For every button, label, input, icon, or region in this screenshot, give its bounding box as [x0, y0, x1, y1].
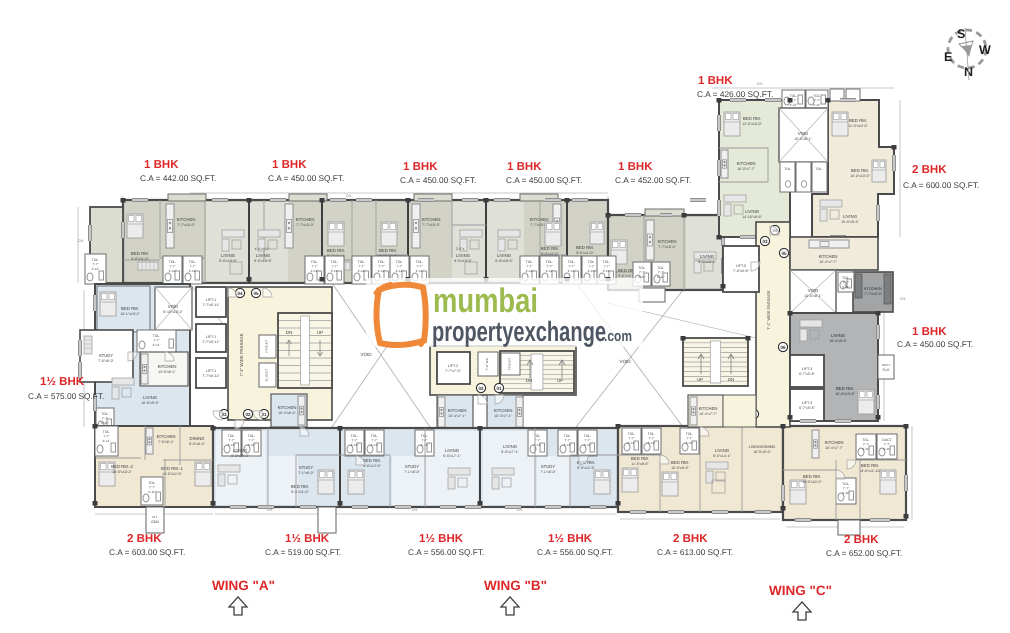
svg-text:TOL.: TOL. — [396, 260, 404, 264]
svg-text:VOID: VOID — [168, 304, 179, 309]
svg-text:2'-6"x: 2'-6"x — [456, 247, 465, 251]
svg-text:TOL.: TOL. — [648, 432, 656, 436]
svg-text:KITCHEN: KITCHEN — [819, 254, 838, 259]
svg-text:KITCHEN: KITCHEN — [699, 406, 718, 411]
svg-text:STUDY: STUDY — [299, 465, 314, 470]
svg-text:3'-11": 3'-11" — [588, 269, 596, 273]
svg-text:BED RM.: BED RM. — [671, 460, 689, 465]
svg-text:KITCHEN: KITCHEN — [825, 440, 844, 445]
svg-text:CH.: CH. — [757, 82, 763, 86]
svg-text:LIFT-2: LIFT-2 — [448, 364, 458, 368]
svg-text:TOL.: TOL. — [311, 260, 319, 264]
svg-text:7'-7": 7'-7" — [416, 265, 422, 269]
svg-text:7'-0"x6'-8": 7'-0"x6'-8" — [733, 269, 749, 273]
svg-text:VOID: VOID — [619, 359, 631, 364]
svg-text:1 BHK: 1 BHK — [618, 161, 653, 173]
svg-text:LIFT-1: LIFT-1 — [206, 369, 216, 373]
svg-text:7'-7"x10'-0": 7'-7"x10'-0" — [422, 223, 440, 227]
svg-text:7'-7": 7'-7" — [169, 265, 175, 269]
svg-text:DN: DN — [728, 377, 734, 382]
svg-text:LIVING: LIVING — [715, 448, 730, 453]
svg-text:DUCT: DUCT — [882, 363, 890, 367]
svg-text:LIVING/DINING: LIVING/DINING — [749, 445, 776, 449]
svg-text:3'-11": 3'-11" — [101, 421, 109, 425]
svg-text:C.A = 450.00 SQ.FT.: C.A = 450.00 SQ.FT. — [268, 173, 344, 183]
svg-text:10'-0"x10'-2": 10'-0"x10'-2" — [112, 470, 132, 474]
svg-text:KITCHEN: KITCHEN — [278, 405, 297, 410]
svg-text:9'-6"x12'-6": 9'-6"x12'-6" — [363, 464, 381, 468]
svg-text:9'-6"x19'-6": 9'-6"x19'-6" — [698, 260, 716, 264]
svg-text:7'-7": 7'-7" — [584, 439, 590, 443]
svg-text:TOL.: TOL. — [378, 260, 386, 264]
svg-text:10'-4"x7'-7": 10'-4"x7'-7" — [825, 446, 843, 450]
svg-text:TOL.: TOL. — [153, 334, 161, 338]
svg-text:7'-7": 7'-7" — [628, 437, 634, 441]
svg-text:8'-0"x8'-4": 8'-0"x8'-4" — [189, 442, 205, 446]
svg-text:LIVING: LIVING — [843, 214, 858, 219]
svg-text:10'-4"x7'-1": 10'-4"x7'-1" — [494, 414, 512, 418]
svg-text:3'-11": 3'-11" — [371, 443, 379, 447]
svg-text:STUDY: STUDY — [405, 464, 420, 469]
svg-text:7'-7": 7'-7" — [396, 265, 402, 269]
svg-text:10'-0"x9'-6": 10'-0"x9'-6" — [671, 466, 689, 470]
svg-text:CH.: CH. — [346, 194, 352, 198]
svg-text:3'-11": 3'-11" — [351, 443, 359, 447]
svg-text:02: 02 — [245, 412, 251, 417]
svg-text:9'-5"x14'-1": 9'-5"x14'-1" — [713, 454, 731, 458]
svg-text:3'-11": 3'-11" — [790, 103, 798, 107]
svg-text:7'-7": 7'-7" — [843, 281, 849, 285]
svg-text:3'-11": 3'-11" — [584, 443, 592, 447]
svg-text:18'-9"x9'-6": 18'-9"x9'-6" — [141, 401, 159, 405]
svg-text:7'-7": 7'-7" — [564, 439, 570, 443]
svg-text:BED RM.: BED RM. — [743, 116, 761, 121]
svg-text:10'-0"x13'-8": 10'-0"x13'-8" — [835, 392, 855, 396]
svg-text:TOL.: TOL. — [331, 260, 339, 264]
svg-text:BED RM.-1: BED RM.-1 — [161, 466, 183, 471]
svg-text:TOL.: TOL. — [148, 481, 156, 485]
svg-text:VOID: VOID — [360, 352, 372, 357]
svg-text:3'-11": 3'-11" — [311, 269, 319, 273]
svg-text:7'-7": 7'-7" — [351, 439, 357, 443]
svg-text:UP: UP — [697, 377, 703, 382]
svg-text:6'-7"x5'-8": 6'-7"x5'-8" — [799, 406, 815, 410]
svg-text:LIVING: LIVING — [256, 253, 271, 258]
svg-text:DN: DN — [526, 378, 532, 383]
svg-text:7'-7": 7'-7" — [371, 439, 377, 443]
svg-text:TOL.: TOL. — [657, 266, 665, 270]
svg-text:3'-11": 3'-11" — [686, 441, 694, 445]
svg-text:KITCHEN: KITCHEN — [158, 364, 177, 369]
svg-text:CH.: CH. — [900, 297, 906, 301]
svg-text:TOL.: TOL. — [842, 482, 850, 486]
svg-text:3'-11": 3'-11" — [568, 269, 576, 273]
svg-text:10'-0"x8'-1": 10'-0"x8'-1" — [794, 137, 812, 141]
svg-text:C.A = 556.00 SQ.FT.: C.A = 556.00 SQ.FT. — [408, 547, 484, 557]
svg-text:7'-7"x5'-11": 7'-7"x5'-11" — [202, 374, 220, 378]
svg-text:7'-7": 7'-7" — [546, 265, 552, 269]
svg-text:DUCT: DUCT — [882, 438, 891, 442]
svg-text:F.F.DUCT: F.F.DUCT — [265, 339, 269, 352]
svg-text:LIVING: LIVING — [497, 253, 512, 258]
svg-text:3'-11": 3'-11" — [358, 269, 366, 273]
svg-text:7'-7": 7'-7" — [102, 417, 108, 421]
svg-text:2 BHK: 2 BHK — [673, 533, 708, 545]
svg-text:TOL.: TOL. — [603, 260, 611, 264]
svg-text:3'-11": 3'-11" — [228, 443, 236, 447]
svg-text:05: 05 — [253, 291, 259, 296]
svg-text:TOL.: TOL. — [228, 434, 236, 438]
svg-text:3'-11": 3'-11" — [546, 269, 554, 273]
svg-text:TOL.: TOL. — [686, 432, 694, 436]
svg-text:TOL.: TOL. — [790, 94, 798, 98]
svg-text:7'-7": 7'-7" — [603, 265, 609, 269]
svg-text:3'-11": 3'-11" — [331, 269, 339, 273]
svg-text:3'-11": 3'-11" — [628, 441, 636, 445]
svg-text:TOL.: TOL. — [103, 430, 111, 434]
svg-text:1 BHK: 1 BHK — [698, 75, 733, 87]
svg-text:10'-4"x7'-7": 10'-4"x7'-7" — [699, 412, 717, 416]
svg-text:3'-11": 3'-11" — [842, 491, 850, 495]
svg-text:TOL.: TOL. — [169, 260, 177, 264]
svg-text:10'-4"x7'-1": 10'-4"x7'-1" — [448, 414, 466, 418]
svg-text:KITCHEN: KITCHEN — [737, 161, 756, 166]
svg-text:05: 05 — [781, 251, 787, 256]
svg-text:WING "C": WING "C" — [769, 583, 832, 598]
svg-text:E: E — [944, 50, 952, 64]
svg-text:LIVING: LIVING — [745, 209, 760, 214]
svg-text:TOL.: TOL. — [526, 260, 534, 264]
svg-text:1½ BHK: 1½ BHK — [40, 376, 85, 388]
svg-text:7'-7": 7'-7" — [526, 265, 532, 269]
svg-text:TOL.: TOL. — [351, 434, 359, 438]
svg-text:BED RM.: BED RM. — [379, 248, 397, 253]
svg-text:3'-11": 3'-11" — [148, 490, 156, 494]
svg-text:3'-11": 3'-11" — [813, 103, 821, 107]
svg-text:TOL.: TOL. — [371, 434, 379, 438]
svg-text:C.A = 556.00 SQ.FT.: C.A = 556.00 SQ.FT. — [537, 547, 613, 557]
svg-text:C.A = 652.00 SQ.FT.: C.A = 652.00 SQ.FT. — [826, 548, 902, 558]
svg-text:10'-1"x10'-2": 10'-1"x10'-2" — [120, 312, 140, 316]
svg-text:GDN: GDN — [151, 520, 159, 524]
svg-text:7'-7": 7'-7" — [92, 263, 98, 267]
svg-text:DN: DN — [286, 330, 293, 335]
svg-text:7'-7"x5'-11": 7'-7"x5'-11" — [202, 303, 220, 307]
svg-text:TOL.: TOL. — [358, 260, 366, 264]
svg-text:10'-0"x7'-7": 10'-0"x7'-7" — [737, 167, 755, 171]
svg-text:C.A = 450.00 SQ.FT.: C.A = 450.00 SQ.FT. — [400, 175, 476, 185]
svg-text:STUDY: STUDY — [99, 353, 114, 358]
svg-text:TOL.: TOL. — [564, 434, 572, 438]
svg-text:9'-6"x11'-0": 9'-6"x11'-0" — [576, 251, 594, 255]
svg-text:LIVING: LIVING — [143, 395, 158, 400]
svg-text:TOL.: TOL. — [546, 260, 554, 264]
svg-text:10'-0"x8'-1": 10'-0"x8'-1" — [804, 294, 822, 298]
svg-text:BED RM.: BED RM. — [861, 463, 879, 468]
svg-text:18'-4"x9'-6": 18'-4"x9'-6" — [829, 339, 847, 343]
svg-text:TOL.: TOL. — [628, 432, 636, 436]
svg-text:W: W — [979, 43, 991, 57]
svg-text:18'-9"x9'-0": 18'-9"x9'-0" — [753, 450, 771, 454]
svg-text:.com: .com — [604, 328, 632, 345]
svg-text:UP: UP — [557, 378, 563, 383]
svg-text:7'-7": 7'-7" — [568, 265, 574, 269]
svg-text:UP: UP — [317, 330, 323, 335]
svg-text:1 BHK: 1 BHK — [144, 159, 179, 171]
svg-text:STUDY: STUDY — [541, 464, 556, 469]
svg-text:TOL.: TOL. — [862, 438, 870, 442]
svg-text:TOL.: TOL. — [842, 276, 850, 280]
svg-text:KITCHEN: KITCHEN — [177, 217, 196, 222]
svg-text:TOL.: TOL. — [416, 260, 424, 264]
svg-text:7'-7"x10'-0": 7'-7"x10'-0" — [658, 245, 676, 249]
svg-text:7'-0"x8'-0": 7'-0"x8'-0" — [98, 359, 114, 363]
svg-text:C.A = 600.00 SQ.FT.: C.A = 600.00 SQ.FT. — [903, 180, 979, 190]
svg-text:7'-1" WIDE PASSAGE: 7'-1" WIDE PASSAGE — [766, 290, 771, 330]
svg-text:7'-7": 7'-7" — [814, 99, 820, 103]
svg-text:BED RM.: BED RM. — [121, 306, 139, 311]
svg-text:3'-11": 3'-11" — [103, 439, 111, 443]
svg-text:7'-7"x10'-0": 7'-7"x10'-0" — [177, 223, 195, 227]
svg-text:7'-7"x5'-11": 7'-7"x5'-11" — [202, 340, 220, 344]
svg-text:KITCHEN: KITCHEN — [448, 408, 467, 413]
svg-text:KITCHEN: KITCHEN — [530, 217, 549, 222]
svg-text:KIT.: KIT. — [152, 515, 157, 519]
svg-text:7'-1"x8'-0": 7'-1"x8'-0" — [540, 470, 556, 474]
svg-text:BED RM.: BED RM. — [131, 251, 149, 256]
svg-text:7'-7": 7'-7" — [358, 265, 364, 269]
svg-text:9'-6"x19'-6": 9'-6"x19'-6" — [254, 259, 272, 263]
svg-text:9'-10"x10'-2": 9'-10"x10'-2" — [163, 310, 183, 314]
svg-text:LIVING: LIVING — [456, 253, 471, 258]
svg-text:WING "B": WING "B" — [484, 578, 547, 593]
svg-text:1 BHK: 1 BHK — [272, 159, 307, 171]
svg-text:1½ BHK: 1½ BHK — [548, 533, 593, 545]
svg-text:C.A = 426.00 SQ.FT.: C.A = 426.00 SQ.FT. — [697, 89, 773, 99]
svg-text:TOL.: TOL. — [588, 260, 596, 264]
svg-text:7'-7": 7'-7" — [686, 437, 692, 441]
svg-text:C.A = 575.00 SQ.FT.: C.A = 575.00 SQ.FT. — [28, 391, 104, 401]
svg-text:EL.DUCT: EL.DUCT — [265, 368, 269, 381]
svg-text:TOL.: TOL. — [784, 167, 791, 171]
svg-text:9'-6"x19'-6": 9'-6"x19'-6" — [454, 259, 472, 263]
svg-text:6'-7"x5'-8": 6'-7"x5'-8" — [799, 372, 815, 376]
svg-text:7'-7": 7'-7" — [153, 339, 159, 343]
svg-text:TOL.: TOL. — [638, 266, 646, 270]
svg-text:3'-11": 3'-11" — [248, 443, 256, 447]
svg-text:7'-8" W.C: 7'-8" W.C — [485, 357, 489, 370]
svg-text:9'-6"x11'-0": 9'-6"x11'-0" — [541, 252, 559, 256]
svg-text:C.A = 450.00 SQ.FT.: C.A = 450.00 SQ.FT. — [897, 339, 973, 349]
svg-text:LIVING: LIVING — [445, 448, 460, 453]
svg-text:3'-11": 3'-11" — [189, 269, 197, 273]
svg-text:3'-11": 3'-11" — [862, 447, 870, 451]
svg-text:7'-7": 7'-7" — [228, 439, 234, 443]
svg-text:11'-6"x8'-6": 11'-6"x8'-6" — [631, 462, 649, 466]
svg-text:7'-7"x10'-0": 7'-7"x10'-0" — [864, 292, 882, 296]
svg-text:7'-7": 7'-7" — [149, 486, 155, 490]
svg-text:9'-6"x19'-6": 9'-6"x19'-6" — [219, 259, 237, 263]
svg-text:TOL.: TOL. — [815, 167, 822, 171]
svg-text:4'-4"x8'-0": 4'-4"x8'-0" — [255, 247, 271, 251]
svg-text:C.A = 613.00 SQ.FT.: C.A = 613.00 SQ.FT. — [657, 547, 733, 557]
svg-text:9'-6"x19'-6": 9'-6"x19'-6" — [231, 454, 249, 458]
svg-text:12'-0"x10'-0": 12'-0"x10'-0" — [742, 122, 762, 126]
svg-text:LIVING: LIVING — [831, 333, 846, 338]
svg-text:11'-0"x10'-0": 11'-0"x10'-0" — [802, 480, 822, 484]
svg-text:7'-1"x8'-0": 7'-1"x8'-0" — [404, 470, 420, 474]
svg-text:KITCHEN: KITCHEN — [864, 286, 882, 291]
svg-text:02: 02 — [478, 386, 484, 391]
svg-text:BED RM.: BED RM. — [851, 168, 869, 173]
svg-text:LIVING: LIVING — [221, 253, 236, 258]
svg-text:7'-7": 7'-7" — [103, 435, 109, 439]
svg-text:LIFT-3: LIFT-3 — [802, 401, 812, 405]
svg-text:KITCHEN: KITCHEN — [494, 408, 513, 413]
svg-text:BED RM.: BED RM. — [541, 246, 559, 251]
svg-text:7'-1"x8'-0": 7'-1"x8'-0" — [298, 471, 314, 475]
svg-text:BED RM.: BED RM. — [631, 456, 649, 461]
svg-text:LIVING: LIVING — [233, 448, 248, 453]
svg-text:1½ BHK: 1½ BHK — [419, 533, 464, 545]
svg-text:10'-0"x10'-0": 10'-0"x10'-0" — [850, 174, 870, 178]
svg-text:3'-11": 3'-11" — [396, 269, 404, 273]
svg-text:BED RM.: BED RM. — [849, 118, 867, 123]
svg-text:2 BHK: 2 BHK — [912, 164, 947, 176]
svg-text:TOL.: TOL. — [421, 434, 429, 438]
svg-text:1 BHK: 1 BHK — [912, 326, 947, 338]
svg-text:2 BHK: 2 BHK — [844, 534, 879, 546]
svg-text:3'-11": 3'-11" — [526, 269, 534, 273]
svg-text:1½ BHK: 1½ BHK — [285, 533, 330, 545]
svg-text:C.A = 452.00 SQ.FT.: C.A = 452.00 SQ.FT. — [615, 175, 691, 185]
svg-text:WING "A": WING "A" — [212, 578, 275, 593]
svg-text:LIFT-3: LIFT-3 — [802, 367, 812, 371]
svg-text:BED RM.: BED RM. — [291, 484, 309, 489]
svg-text:03: 03 — [762, 239, 768, 244]
svg-text:10'-4"x8'-4": 10'-4"x8'-4" — [278, 411, 296, 415]
svg-text:3'-11": 3'-11" — [657, 275, 665, 279]
svg-text:BED RM.: BED RM. — [803, 474, 821, 479]
svg-text:7'-7": 7'-7" — [884, 443, 890, 447]
svg-text:14'-10"x9'-6": 14'-10"x9'-6" — [742, 215, 762, 219]
svg-text:TOL.: TOL. — [92, 258, 100, 262]
svg-text:KITCHEN: KITCHEN — [157, 434, 176, 439]
svg-text:TOL.: TOL. — [568, 260, 576, 264]
svg-text:3'-11": 3'-11" — [564, 443, 572, 447]
svg-text:04: 04 — [237, 291, 243, 296]
svg-text:3'-11": 3'-11" — [169, 269, 177, 273]
svg-text:7'-5"x8'-4": 7'-5"x8'-4" — [158, 440, 174, 444]
svg-text:7'-7": 7'-7" — [331, 265, 337, 269]
svg-text:7'-7": 7'-7" — [378, 265, 384, 269]
svg-text:DINING: DINING — [189, 436, 205, 441]
svg-text:BED RM.: BED RM. — [576, 245, 594, 250]
svg-text:2 BHK: 2 BHK — [127, 533, 162, 545]
svg-text:7'-7": 7'-7" — [658, 271, 664, 275]
svg-text:BED RM.-2: BED RM.-2 — [111, 464, 133, 469]
svg-text:TOL.: TOL. — [101, 412, 109, 416]
svg-text:11'-0"x10'-0": 11'-0"x10'-0" — [848, 124, 868, 128]
svg-text:06: 06 — [780, 345, 786, 350]
svg-text:TOL.: TOL. — [189, 260, 197, 264]
svg-text:KITCHEN: KITCHEN — [422, 217, 441, 222]
svg-text:9'-6"x12'-6": 9'-6"x12'-6" — [577, 466, 595, 470]
svg-text:F.F.DUCT: F.F.DUCT — [508, 358, 512, 371]
svg-text:C.A = 519.00 SQ.FT.: C.A = 519.00 SQ.FT. — [265, 547, 341, 557]
svg-text:VOID: VOID — [798, 131, 809, 136]
svg-text:15'-0"x9'-6": 15'-0"x9'-6" — [841, 220, 859, 224]
svg-text:7'-7": 7'-7" — [421, 439, 427, 443]
svg-text:C.A = 442.00 SQ.FT.: C.A = 442.00 SQ.FT. — [140, 173, 216, 183]
svg-text:CH.: CH. — [412, 508, 418, 512]
svg-text:9'-6"x11'-0": 9'-6"x11'-0" — [291, 490, 309, 494]
svg-text:3'-11": 3'-11" — [92, 267, 100, 271]
svg-text:BED RM.: BED RM. — [836, 386, 854, 391]
svg-text:9'-6"x17'-1": 9'-6"x17'-1" — [443, 454, 461, 458]
svg-text:BED RM.: BED RM. — [327, 248, 345, 253]
svg-text:TOL.: TOL. — [248, 434, 256, 438]
svg-text:7'-7": 7'-7" — [648, 437, 654, 441]
svg-text:7'-1" WIDE PASSAGE: 7'-1" WIDE PASSAGE — [239, 333, 244, 376]
svg-text:1 BHK: 1 BHK — [403, 161, 438, 173]
svg-text:7'-7": 7'-7" — [189, 265, 195, 269]
svg-text:7'-7": 7'-7" — [248, 439, 254, 443]
svg-text:TOL.: TOL. — [813, 94, 821, 98]
svg-text:9'-6"x11'-0": 9'-6"x11'-0" — [131, 257, 149, 261]
svg-text:BED RM.: BED RM. — [363, 458, 381, 463]
svg-text:3'-11": 3'-11" — [603, 269, 611, 273]
svg-text:KITCHEN: KITCHEN — [658, 239, 677, 244]
svg-text:3'-11": 3'-11" — [648, 441, 656, 445]
svg-text:9'-6"x18'-6": 9'-6"x18'-6" — [495, 259, 513, 263]
svg-text:C.A = 450.00 SQ.FT.: C.A = 450.00 SQ.FT. — [506, 175, 582, 185]
svg-text:3'-11": 3'-11" — [421, 443, 429, 447]
svg-text:01: 01 — [496, 386, 502, 391]
svg-text:10'-0"x11'-10": 10'-0"x11'-10" — [859, 469, 881, 473]
svg-text:7'-7"x10'-0": 7'-7"x10'-0" — [296, 223, 314, 227]
svg-text:7'-7": 7'-7" — [311, 265, 317, 269]
svg-text:7'-7": 7'-7" — [639, 271, 645, 275]
svg-text:LIVING: LIVING — [503, 444, 518, 449]
svg-text:10'-4"x7'-7": 10'-4"x7'-7" — [819, 260, 837, 264]
svg-text:3'-11": 3'-11" — [883, 447, 891, 451]
svg-text:S: S — [957, 27, 965, 41]
svg-text:3'-11": 3'-11" — [153, 343, 161, 347]
svg-text:7'-7": 7'-7" — [863, 443, 869, 447]
svg-text:CH.: CH. — [78, 239, 84, 243]
svg-text:9'-6"x17'-1": 9'-6"x17'-1" — [501, 450, 519, 454]
svg-text:7'-7": 7'-7" — [843, 487, 849, 491]
svg-text:3'-11": 3'-11" — [378, 269, 386, 273]
svg-text:LIFT-1: LIFT-1 — [206, 298, 216, 302]
svg-text:LIFT-5: LIFT-5 — [736, 264, 746, 268]
svg-text:3'x3': 3'x3' — [883, 368, 890, 372]
svg-text:7'-7"x7'-5": 7'-7"x7'-5" — [445, 369, 461, 373]
svg-text:LIVING: LIVING — [700, 254, 715, 259]
svg-text:3'-11": 3'-11" — [416, 269, 424, 273]
svg-text:13'-8"x8'-1": 13'-8"x8'-1" — [158, 370, 176, 374]
svg-text:LIFT-1: LIFT-1 — [206, 335, 216, 339]
svg-text:TOL.: TOL. — [584, 434, 592, 438]
svg-text:1 BHK: 1 BHK — [507, 161, 542, 173]
svg-text:C.A = 603.00 SQ.FT.: C.A = 603.00 SQ.FT. — [109, 547, 185, 557]
svg-text:3'-11": 3'-11" — [842, 285, 850, 289]
svg-text:mumbai: mumbai — [433, 282, 538, 320]
svg-text:KITCHEN: KITCHEN — [296, 217, 315, 222]
svg-text:7'-7": 7'-7" — [588, 265, 594, 269]
svg-text:propertyexchange: propertyexchange — [432, 316, 606, 347]
